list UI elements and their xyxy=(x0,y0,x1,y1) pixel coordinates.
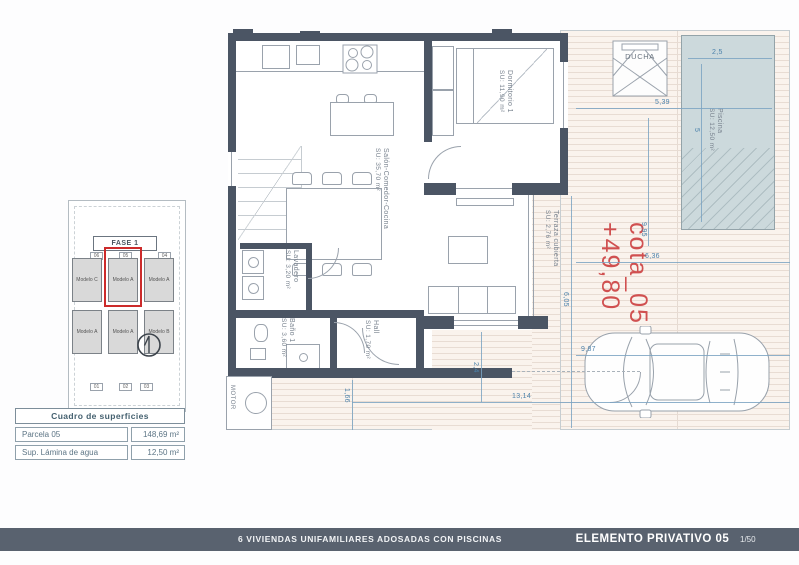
table-cell-value: 12,50 m² xyxy=(131,445,185,460)
dining-chair xyxy=(292,172,312,185)
project-title: 6 VIVIENDAS UNIFAMILIARES ADOSADAS CON P… xyxy=(235,528,505,551)
ducha-label: DUCHA xyxy=(612,52,668,61)
washer xyxy=(242,276,264,300)
surface-table-title: Cuadro de superficies xyxy=(15,408,185,424)
room-area: SU: 1,70 m² xyxy=(362,320,371,359)
plot-tag: 01 xyxy=(90,383,103,391)
wall-pier xyxy=(300,31,320,41)
wall xyxy=(424,183,456,195)
site-house: Modelo C xyxy=(72,258,102,302)
glass-wall xyxy=(454,320,518,326)
room-name: Dormitorio 1 xyxy=(505,70,514,113)
dimension-line xyxy=(576,108,772,109)
level-mark-value: +49,80 xyxy=(596,222,624,325)
fridge xyxy=(262,45,290,69)
dimension-label-mid: 6,36 xyxy=(645,253,660,260)
room-label-dormitorio: Dormitorio 1 SU: 11,90 m² xyxy=(496,70,514,113)
motor-label: MOTOR xyxy=(229,385,235,410)
motor-box: MOTOR xyxy=(226,376,272,430)
plot-tag: 02 xyxy=(119,383,132,391)
dimension-line xyxy=(648,118,649,246)
room-name: Terraza cubierta xyxy=(551,210,560,267)
dimension-line xyxy=(352,402,790,403)
room-name: Baño 1 xyxy=(287,318,296,357)
table-row: Sup. Lámina de agua 12,50 m² xyxy=(15,445,185,460)
room-label-piscina: Piscina SU: 12,50 m² xyxy=(706,108,724,151)
wardrobe xyxy=(432,90,454,136)
room-area: SU: 11,90 m² xyxy=(496,70,505,113)
table-cell-label: Parcela 05 xyxy=(15,427,128,442)
dimension-label-deck-top: 5,39 xyxy=(655,99,670,106)
dining-chair xyxy=(352,172,372,185)
washer xyxy=(242,250,264,274)
sofa xyxy=(428,286,516,314)
table-row: Parcela 05 148,69 m² xyxy=(15,427,185,442)
dimension-line xyxy=(701,64,702,222)
room-area: SU: 35,70 m² xyxy=(372,148,381,229)
dimension-label-right-vertical: 9,95 xyxy=(640,222,647,237)
scale-label: 1/50 xyxy=(740,528,780,551)
wall-pier xyxy=(492,29,512,41)
wall xyxy=(416,310,424,368)
dimension-label-porch-vertical: 2,4 xyxy=(472,362,479,373)
room-label-lavadero: Lavadero SU: 3,20 m² xyxy=(282,250,300,289)
room-name: Lavadero xyxy=(291,250,300,289)
footer-bar: 6 VIVIENDAS UNIFAMILIARES ADOSADAS CON P… xyxy=(0,528,799,551)
plan-sheet: Piscina SU: 12,50 m² DUCHA xyxy=(0,0,799,565)
tv-unit xyxy=(456,198,514,206)
dimension-line xyxy=(481,332,482,402)
window xyxy=(228,152,236,186)
kitchen-sink xyxy=(296,45,320,65)
room-area: SU: 12,50 m² xyxy=(706,108,715,151)
dining-chair xyxy=(352,263,372,276)
dimension-label-pool-length: 5 xyxy=(693,128,700,132)
window xyxy=(560,62,568,128)
dimension-label-driveway: 9,87 xyxy=(581,346,596,353)
dimension-label-left-vertical: 1,66 xyxy=(343,388,350,403)
sheet-title: ELEMENTO PRIVATIVO 05 xyxy=(565,528,740,551)
room-name: Piscina xyxy=(715,108,724,151)
room-area: SU: 3,20 m² xyxy=(282,250,291,289)
highlighted-plot-05 xyxy=(104,247,142,307)
pump-symbol-icon xyxy=(245,392,267,414)
wall xyxy=(236,310,424,318)
wall xyxy=(228,33,236,378)
room-name: Salón-Comedor-Cocina xyxy=(381,148,390,229)
dimension-line xyxy=(571,196,572,428)
wall xyxy=(518,316,548,329)
site-plan: FASE 1 06 05 04 Modelo C Modelo A Modelo… xyxy=(60,195,195,425)
table-cell-value: 148,69 m² xyxy=(131,427,185,442)
wall xyxy=(228,33,568,41)
deck-under-bay xyxy=(432,330,532,430)
shower-symbol-icon xyxy=(612,40,668,98)
dimension-line xyxy=(688,58,772,59)
stove-icon xyxy=(342,44,378,74)
north-arrow-icon xyxy=(136,332,162,358)
wardrobe xyxy=(432,46,454,90)
wall xyxy=(240,243,312,249)
dimension-label-terrace-vertical: 6,05 xyxy=(562,292,569,307)
site-house: Modelo A xyxy=(108,310,138,354)
wall-pier xyxy=(233,29,253,41)
pool-steps-hatch xyxy=(681,148,775,230)
room-area: SU: 3,60 m² xyxy=(278,318,287,357)
dimension-line xyxy=(576,262,790,263)
glass-wall xyxy=(528,195,534,316)
toilet xyxy=(254,324,268,342)
dimension-line xyxy=(576,355,790,356)
coffee-table xyxy=(448,236,488,264)
wall xyxy=(512,183,568,195)
surface-table: Cuadro de superficies Parcela 05 148,69 … xyxy=(15,408,185,460)
site-house: Modelo A xyxy=(144,258,174,302)
wall xyxy=(424,316,454,329)
room-label-salon: Salón-Comedor-Cocina SU: 35,70 m² xyxy=(372,148,390,229)
dimension-line xyxy=(352,380,353,430)
room-label-terraza: Terraza cubierta SU: 2,76 m² xyxy=(542,210,560,267)
dimension-label-bottom: 13,14 xyxy=(512,393,531,400)
room-label-bano: Baño 1 SU: 3,60 m² xyxy=(278,318,296,357)
plot-tag: 03 xyxy=(140,383,153,391)
kitchen-island xyxy=(330,102,394,136)
wall xyxy=(424,41,432,142)
dimension-label-pool-width: 2,5 xyxy=(712,49,723,56)
room-area: SU: 2,76 m² xyxy=(542,210,551,267)
room-label-hall: Hall SU: 1,70 m² xyxy=(362,320,380,359)
room-name: Hall xyxy=(371,320,380,359)
stool xyxy=(336,94,349,103)
table-cell-label: Sup. Lámina de agua xyxy=(15,445,128,460)
dining-chair xyxy=(322,172,342,185)
site-house: Modelo A xyxy=(72,310,102,354)
sliding-door xyxy=(456,185,512,194)
level-mark: cota_05 +49,80 xyxy=(596,222,652,325)
stool xyxy=(364,94,377,103)
bathroom-sink xyxy=(250,348,266,360)
